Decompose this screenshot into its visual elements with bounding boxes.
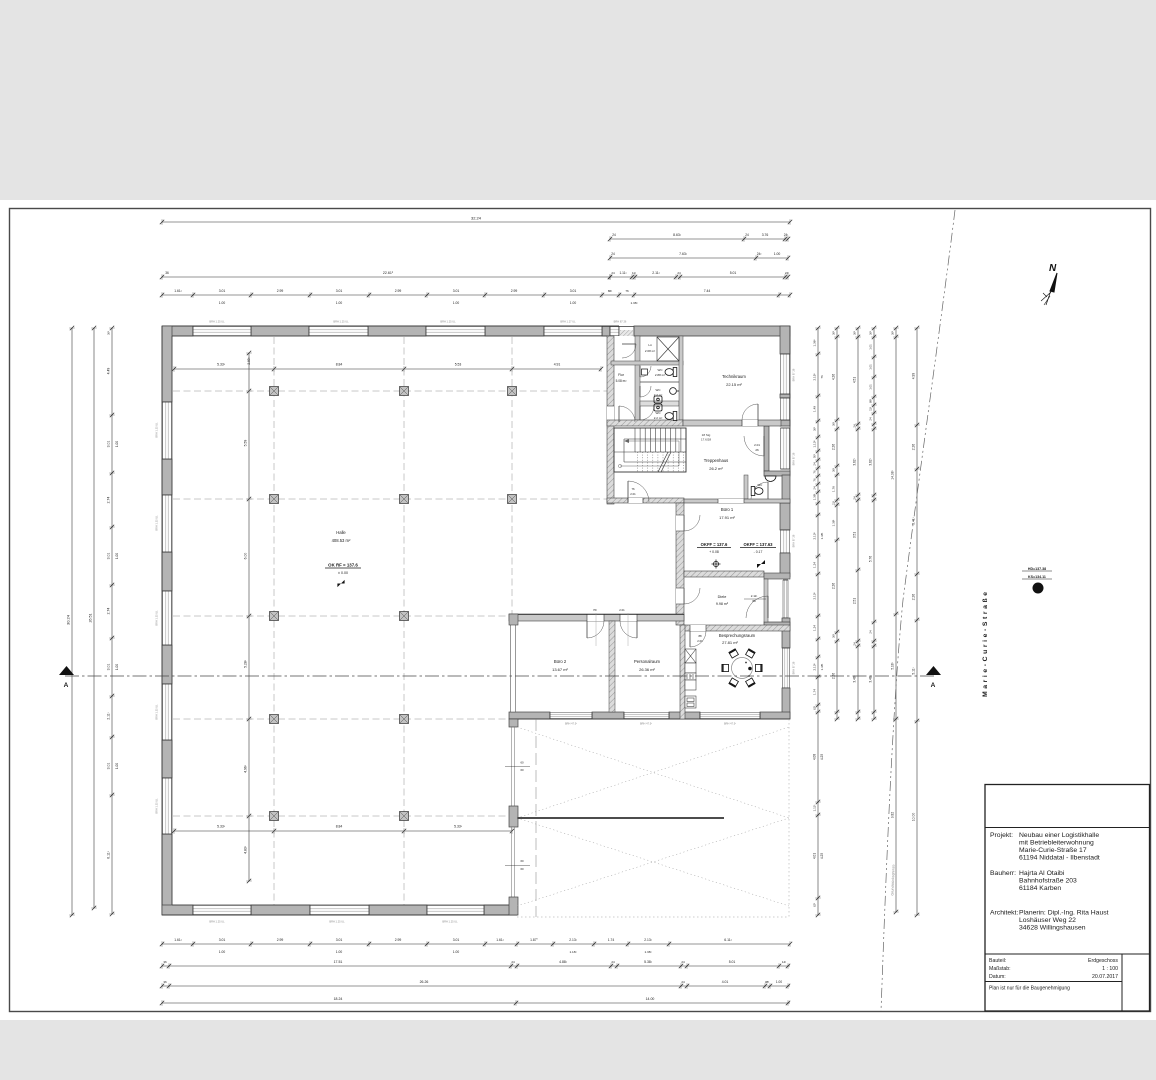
- svg-text:5.53: 5.53: [455, 363, 462, 367]
- svg-text:1.01: 1.01: [869, 344, 873, 350]
- svg-text:14.00: 14.00: [646, 997, 655, 1001]
- svg-text:76: 76: [813, 478, 817, 482]
- svg-text:Loshäuser Weg 22: Loshäuser Weg 22: [1019, 917, 1076, 924]
- svg-text:26.36 m²: 26.36 m²: [639, 667, 655, 672]
- svg-text:61194 Niddatal - Ilbenstadt: 61194 Niddatal - Ilbenstadt: [1019, 855, 1100, 862]
- svg-text:60: 60: [520, 867, 524, 871]
- svg-text:1.61¹: 1.61¹: [174, 938, 182, 942]
- svg-text:OKFF = 137.63: OKFF = 137.63: [744, 542, 774, 547]
- svg-text:1.11¹: 1.11¹: [619, 271, 626, 275]
- svg-text:Büro 1: Büro 1: [721, 507, 734, 512]
- svg-text:1.24: 1.24: [813, 562, 817, 568]
- svg-text:3.01: 3.01: [107, 553, 111, 560]
- svg-text:1.38¹: 1.38¹: [820, 664, 824, 671]
- svg-text:88: 88: [698, 634, 702, 638]
- svg-text:Marie-Curie-Straße 17: Marie-Curie-Straße 17: [1019, 847, 1087, 854]
- svg-text:1.87°: 1.87°: [530, 938, 538, 942]
- svg-text:2.01: 2.01: [630, 492, 636, 496]
- svg-text:1.00: 1.00: [336, 950, 343, 954]
- svg-text:3.01: 3.01: [107, 441, 111, 448]
- svg-text:1.13¹: 1.13¹: [813, 440, 817, 447]
- svg-text:3.01: 3.01: [336, 938, 343, 942]
- svg-text:1.74: 1.74: [813, 689, 817, 695]
- svg-text:20.07.2017: 20.07.2017: [1092, 974, 1118, 980]
- svg-text:Marie-Curie-Straße: Marie-Curie-Straße: [982, 589, 989, 697]
- svg-text:- 0.17: - 0.17: [754, 550, 763, 554]
- svg-text:26.26: 26.26: [420, 980, 429, 984]
- svg-text:2.99: 2.99: [277, 938, 284, 942]
- svg-text:Datum:: Datum:: [989, 974, 1006, 980]
- svg-text:4.01: 4.01: [722, 980, 729, 984]
- svg-text:4.25: 4.25: [820, 853, 824, 859]
- svg-text:24¹: 24¹: [785, 271, 789, 275]
- svg-text:2.15¹: 2.15¹: [813, 373, 817, 380]
- svg-text:88¹: 88¹: [869, 399, 873, 403]
- svg-text:24: 24: [611, 252, 615, 256]
- svg-text:BRH 1.27 UL: BRH 1.27 UL: [560, 320, 576, 324]
- svg-text:36²: 36²: [853, 331, 857, 335]
- svg-text:Besprechungsraum: Besprechungsraum: [719, 633, 756, 638]
- svg-text:BRH 1.25 UL: BRH 1.25 UL: [329, 920, 345, 924]
- svg-text:4.91: 4.91: [554, 363, 561, 367]
- svg-text:62¹: 62¹: [813, 903, 817, 907]
- svg-text:1 : 100: 1 : 100: [1102, 966, 1118, 972]
- svg-text:BRH 87.36: BRH 87.36: [792, 452, 796, 465]
- svg-text:24: 24: [745, 233, 749, 237]
- svg-text:1.11¹: 1.11¹: [813, 805, 817, 812]
- svg-text:24²: 24²: [757, 252, 762, 256]
- svg-text:2.2 m²: 2.2 m²: [654, 416, 663, 420]
- svg-text:1.38¹: 1.38¹: [813, 494, 817, 501]
- svg-text:1.00: 1.00: [115, 664, 119, 670]
- svg-text:11¹: 11¹: [632, 271, 636, 275]
- svg-text:1.00: 1.00: [776, 980, 782, 984]
- svg-text:60: 60: [520, 859, 524, 863]
- svg-text:4.83¹: 4.83¹: [244, 845, 248, 854]
- svg-text:24: 24: [813, 486, 817, 490]
- svg-text:5.11¹: 5.11¹: [912, 666, 916, 674]
- svg-text:24: 24: [869, 417, 873, 421]
- svg-text:2.99: 2.99: [511, 289, 518, 293]
- svg-text:1.38¹: 1.38¹: [630, 301, 637, 305]
- svg-text:8.63¹: 8.63¹: [673, 233, 682, 237]
- svg-text:24: 24: [869, 630, 873, 634]
- svg-text:A: A: [931, 682, 936, 689]
- svg-text:2.26: 2.26: [832, 444, 836, 450]
- svg-text:5.33¹: 5.33¹: [217, 363, 226, 367]
- svg-text:BRH 87.36: BRH 87.36: [792, 368, 796, 381]
- svg-text:5.59: 5.59: [244, 440, 248, 447]
- svg-text:50¹: 50¹: [813, 454, 817, 458]
- svg-text:Halle: Halle: [336, 530, 346, 535]
- svg-text:± 0.00: ± 0.00: [338, 571, 348, 575]
- svg-text:1.00: 1.00: [453, 301, 460, 305]
- svg-text:22.15 m²: 22.15 m²: [726, 382, 742, 387]
- svg-text:BRH 87.36: BRH 87.36: [792, 661, 796, 674]
- svg-text:2.99: 2.99: [395, 289, 402, 293]
- svg-text:14¹: 14¹: [782, 960, 786, 964]
- svg-text:4.96¹: 4.96¹: [244, 764, 248, 773]
- svg-text:BRH 1.25 UL: BRH 1.25 UL: [155, 422, 159, 438]
- svg-text:1.76: 1.76: [832, 486, 836, 492]
- svg-text:1.18¹: 1.18¹: [569, 950, 576, 954]
- svg-text:2.99: 2.99: [277, 289, 284, 293]
- svg-text:6.11¹: 6.11¹: [724, 938, 732, 942]
- svg-text:4.08: 4.08: [813, 754, 817, 760]
- svg-text:1.01: 1.01: [869, 384, 873, 390]
- svg-text:2.01: 2.01: [697, 639, 703, 643]
- svg-text:5.33¹: 5.33¹: [217, 825, 226, 829]
- svg-text:3.01: 3.01: [570, 289, 577, 293]
- svg-text:2.11¹: 2.11¹: [751, 594, 758, 598]
- svg-text:76: 76: [631, 487, 635, 491]
- svg-text:1.74: 1.74: [608, 938, 615, 942]
- svg-text:26.51: 26.51: [89, 614, 93, 623]
- svg-text:4.88¹: 4.88¹: [559, 960, 568, 964]
- svg-text:3.62¹: 3.62¹: [853, 458, 857, 465]
- svg-text:BRH 1.25 UL: BRH 1.25 UL: [155, 515, 159, 531]
- svg-text:36²: 36²: [832, 468, 836, 472]
- svg-text:11¹: 11¹: [832, 501, 836, 505]
- svg-text:2.13¹: 2.13¹: [569, 938, 577, 942]
- svg-text:1.00: 1.00: [336, 301, 343, 305]
- svg-text:10.00: 10.00: [912, 813, 916, 822]
- svg-text:BRH 47.5¹: BRH 47.5¹: [565, 722, 577, 726]
- svg-text:1.00: 1.00: [219, 301, 226, 305]
- svg-text:24¹: 24¹: [784, 233, 789, 237]
- svg-text:1.36¹: 1.36¹: [813, 339, 817, 346]
- svg-text:24: 24: [611, 960, 615, 964]
- svg-text:1.00: 1.00: [774, 252, 781, 256]
- svg-text:KS=134.11: KS=134.11: [1028, 575, 1046, 579]
- svg-text:Technikraum: Technikraum: [722, 374, 746, 379]
- svg-text:N: N: [1049, 263, 1057, 274]
- svg-text:60: 60: [520, 768, 524, 772]
- svg-text:5.76: 5.76: [869, 556, 873, 562]
- svg-text:24: 24: [813, 462, 817, 466]
- svg-text:Treppenhaus: Treppenhaus: [704, 458, 729, 463]
- svg-text:1.61¹: 1.61¹: [174, 289, 182, 293]
- svg-text:5.01: 5.01: [730, 271, 737, 275]
- svg-text:1.01: 1.01: [869, 364, 873, 370]
- svg-text:11¹: 11¹: [869, 407, 873, 411]
- svg-text:8.84: 8.84: [336, 825, 343, 829]
- svg-text:3.48¹: 3.48¹: [853, 675, 857, 682]
- svg-text:26: 26: [755, 448, 759, 452]
- svg-text:WC: WC: [656, 411, 662, 415]
- svg-text:A: A: [64, 682, 69, 689]
- svg-text:1.38¹: 1.38¹: [832, 520, 836, 527]
- svg-text:62¹: 62¹: [813, 706, 817, 710]
- svg-text:38²: 38²: [765, 980, 769, 984]
- svg-text:BRH 1.25 UL: BRH 1.25 UL: [155, 610, 159, 626]
- svg-text:24: 24: [681, 980, 685, 984]
- svg-text:Bahnhofstraße 203: Bahnhofstraße 203: [1019, 878, 1077, 885]
- svg-text:2.51: 2.51: [853, 598, 857, 604]
- svg-text:76¹: 76¹: [593, 608, 597, 612]
- svg-text:14.38¹: 14.38¹: [891, 469, 895, 479]
- svg-text:1.24: 1.24: [813, 625, 817, 631]
- svg-text:1.00: 1.00: [219, 950, 226, 954]
- svg-text:OK RF = 137.6: OK RF = 137.6: [328, 563, 358, 568]
- svg-text:2.01: 2.01: [754, 443, 760, 447]
- svg-text:24: 24: [681, 960, 685, 964]
- svg-text:+ 0.08: + 0.08: [709, 550, 719, 554]
- svg-text:Lü: Lü: [648, 343, 652, 347]
- svg-text:2.26: 2.26: [832, 583, 836, 589]
- svg-text:WC: WC: [758, 483, 763, 487]
- svg-text:BRH 47.5¹: BRH 47.5¹: [640, 722, 652, 726]
- svg-text:BRH 87.36: BRH 87.36: [792, 534, 796, 547]
- svg-text:Erdgeschoss: Erdgeschoss: [1088, 958, 1118, 964]
- svg-text:Bauteil:: Bauteil:: [989, 958, 1006, 964]
- svg-text:17.6/28: 17.6/28: [701, 438, 711, 442]
- svg-text:1.00: 1.00: [115, 763, 119, 769]
- svg-text:3.62¹: 3.62¹: [869, 458, 873, 465]
- svg-text:2.99: 2.99: [395, 938, 402, 942]
- svg-text:36²: 36²: [869, 331, 873, 335]
- svg-text:Büro 2: Büro 2: [554, 659, 567, 664]
- svg-text:18.24: 18.24: [334, 997, 343, 1001]
- svg-text:24: 24: [611, 271, 615, 275]
- svg-text:Architekt:: Architekt:: [990, 910, 1018, 917]
- svg-text:18 Stg: 18 Stg: [702, 433, 711, 437]
- svg-text:8.84: 8.84: [336, 363, 343, 367]
- svg-text:4.49: 4.49: [107, 368, 111, 375]
- svg-text:6.11¹: 6.11¹: [107, 850, 111, 858]
- svg-text:4.01: 4.01: [813, 853, 817, 859]
- svg-text:3.01: 3.01: [453, 289, 460, 293]
- svg-text:BRH 47.5¹: BRH 47.5¹: [724, 722, 736, 726]
- svg-text:30.24: 30.24: [66, 614, 71, 625]
- svg-text:Bauherr:: Bauherr:: [990, 870, 1016, 877]
- svg-text:1.00: 1.00: [115, 441, 119, 447]
- svg-text:86¹: 86¹: [608, 289, 612, 293]
- svg-text:1.49: 1.49: [813, 406, 817, 412]
- svg-text:BRH 1.25 UL: BRH 1.25 UL: [442, 920, 458, 924]
- svg-text:1.38¹: 1.38¹: [644, 950, 651, 954]
- svg-text:Plan ist nur für die Baugenehm: Plan ist nur für die Baugenehmigung: [989, 986, 1070, 992]
- svg-text:32.24: 32.24: [471, 216, 482, 221]
- svg-text:76: 76: [813, 470, 817, 474]
- svg-text:Maßstab:: Maßstab:: [989, 966, 1011, 972]
- svg-text:17.91 m²: 17.91 m²: [719, 515, 735, 520]
- svg-text:5.01: 5.01: [729, 960, 736, 964]
- svg-text:4.25: 4.25: [820, 754, 824, 760]
- svg-text:5.38¹: 5.38¹: [644, 960, 653, 964]
- svg-text:2.26: 2.26: [912, 594, 916, 601]
- svg-text:9.82: 9.82: [891, 812, 895, 818]
- svg-text:22.61¹: 22.61¹: [383, 271, 394, 275]
- svg-text:Flur: Flur: [618, 373, 625, 377]
- svg-text:Hajrta Al Otaibi: Hajrta Al Otaibi: [1019, 870, 1065, 877]
- svg-text:2.13¹: 2.13¹: [813, 663, 817, 670]
- svg-text:BRH 1.25 UL: BRH 1.25 UL: [209, 920, 225, 924]
- svg-text:3.01: 3.01: [219, 938, 226, 942]
- svg-text:5.33¹: 5.33¹: [454, 825, 463, 829]
- svg-text:5.28¹: 5.28¹: [244, 659, 248, 668]
- svg-text:27.81 m²: 27.81 m²: [722, 640, 738, 645]
- svg-text:36²: 36²: [107, 331, 111, 335]
- svg-text:1.00: 1.00: [115, 553, 119, 559]
- svg-text:36²: 36²: [891, 331, 895, 335]
- svg-text:2.13¹: 2.13¹: [644, 938, 652, 942]
- svg-text:34628 Willingshausen: 34628 Willingshausen: [1019, 925, 1086, 932]
- svg-text:WC: WC: [656, 388, 662, 392]
- svg-text:3.01: 3.01: [219, 289, 226, 293]
- svg-text:2.11¹: 2.11¹: [652, 271, 660, 275]
- svg-text:2.2 m²: 2.2 m²: [654, 393, 663, 397]
- svg-text:36: 36: [163, 980, 167, 984]
- svg-text:Planerin: Dipl.-Ing. Rita Haus: Planerin: Dipl.-Ing. Rita Haust: [1019, 910, 1109, 917]
- svg-text:3.01: 3.01: [453, 938, 460, 942]
- svg-text:BRH 1.25 UL: BRH 1.25 UL: [155, 798, 159, 814]
- svg-text:3.76: 3.76: [762, 233, 769, 237]
- svg-text:60: 60: [520, 761, 524, 765]
- svg-text:9.98 m²: 9.98 m²: [716, 602, 729, 606]
- svg-text:HD=137.38: HD=137.38: [1028, 567, 1046, 571]
- svg-text:61184 Karben: 61184 Karben: [1019, 885, 1061, 892]
- svg-text:3.01: 3.01: [336, 289, 343, 293]
- svg-text:Diele: Diele: [718, 595, 727, 599]
- svg-text:2.74: 2.74: [107, 608, 111, 615]
- svg-text:3.48¹: 3.48¹: [869, 675, 873, 682]
- svg-text:4.51: 4.51: [853, 377, 857, 383]
- svg-text:1.00: 1.00: [453, 950, 460, 954]
- svg-text:3.51: 3.51: [853, 532, 857, 538]
- svg-text:88: 88: [752, 599, 756, 603]
- svg-text:BRH 1.25 UL: BRH 1.25 UL: [209, 320, 225, 324]
- svg-text:36: 36: [163, 960, 167, 964]
- svg-text:3.01: 3.01: [107, 763, 111, 770]
- svg-text:36²: 36²: [832, 422, 836, 426]
- svg-text:7.63¹: 7.63¹: [679, 252, 688, 256]
- svg-text:76: 76: [625, 289, 629, 293]
- svg-text:OKFF = 137.6: OKFF = 137.6: [701, 542, 728, 547]
- svg-text:4.99: 4.99: [912, 373, 916, 380]
- svg-text:17.51: 17.51: [334, 960, 343, 964]
- svg-text:BRH 1.25 UL: BRH 1.25 UL: [440, 320, 456, 324]
- svg-text:1.00: 1.00: [570, 301, 577, 305]
- svg-text:36²: 36²: [832, 634, 836, 638]
- svg-text:24: 24: [853, 424, 857, 428]
- svg-text:36¹: 36¹: [813, 427, 817, 431]
- svg-text:2.26: 2.26: [912, 444, 916, 451]
- svg-text:76: 76: [820, 375, 824, 379]
- svg-text:5.18¹: 5.18¹: [891, 662, 895, 669]
- svg-text:1.38¹: 1.38¹: [820, 533, 824, 540]
- svg-text:6.00: 6.00: [244, 553, 248, 560]
- svg-text:26.2 m²: 26.2 m²: [709, 466, 723, 471]
- svg-text:1.61¹: 1.61¹: [496, 938, 504, 942]
- svg-text:2.74: 2.74: [107, 497, 111, 504]
- svg-text:2.01: 2.01: [619, 608, 625, 612]
- svg-text:mit Betriebleiterwohnung: mit Betriebleiterwohnung: [1019, 840, 1094, 847]
- svg-text:36: 36: [165, 271, 169, 275]
- svg-text:Projekt:: Projekt:: [990, 832, 1013, 839]
- svg-text:2.11¹: 2.11¹: [107, 711, 111, 719]
- svg-text:24: 24: [612, 233, 616, 237]
- svg-text:36²: 36²: [832, 331, 836, 335]
- svg-text:2.88 m²: 2.88 m²: [655, 373, 665, 377]
- svg-text:2.13¹: 2.13¹: [813, 532, 817, 539]
- svg-text:24: 24: [853, 496, 857, 500]
- svg-text:24: 24: [853, 642, 857, 646]
- svg-text:408.53 m²: 408.53 m²: [332, 538, 351, 543]
- svg-text:24: 24: [677, 271, 681, 275]
- svg-text:7.44: 7.44: [704, 289, 711, 293]
- svg-text:BRH 1.25 UL: BRH 1.25 UL: [333, 320, 349, 324]
- svg-text:Personalraum: Personalraum: [634, 659, 661, 664]
- svg-text:WC: WC: [658, 368, 664, 372]
- svg-text:BRH 1.25 UL: BRH 1.25 UL: [155, 704, 159, 720]
- svg-text:4.26: 4.26: [832, 374, 836, 380]
- svg-text:BRH 87.36: BRH 87.36: [614, 320, 627, 324]
- svg-text:2.68 m²: 2.68 m²: [645, 349, 655, 353]
- svg-text:13.67 m²: 13.67 m²: [552, 667, 568, 672]
- svg-text:5.08 m²: 5.08 m²: [616, 379, 627, 383]
- svg-text:2.13¹: 2.13¹: [813, 592, 817, 599]
- svg-text:Neubau einer Logistikhalle: Neubau einer Logistikhalle: [1019, 832, 1099, 839]
- svg-text:3.01: 3.01: [107, 664, 111, 671]
- svg-text:24: 24: [511, 960, 515, 964]
